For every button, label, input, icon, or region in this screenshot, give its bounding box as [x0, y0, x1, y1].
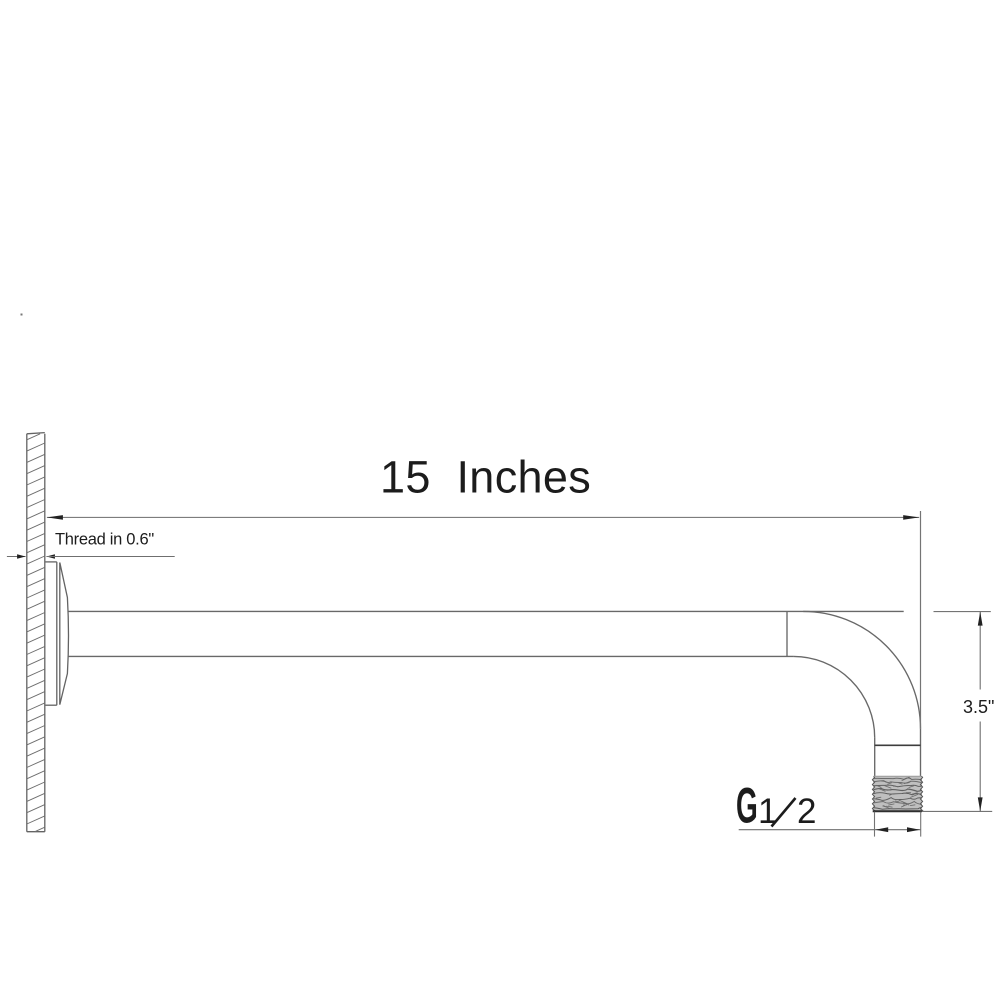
svg-text:15 Inches: 15 Inches	[380, 452, 591, 503]
svg-text:Thread in 0.6": Thread in 0.6"	[55, 531, 154, 549]
svg-text:3.5": 3.5"	[963, 697, 994, 717]
svg-text:2: 2	[797, 792, 816, 831]
svg-text:G: G	[736, 777, 758, 834]
svg-text:1: 1	[758, 792, 777, 831]
